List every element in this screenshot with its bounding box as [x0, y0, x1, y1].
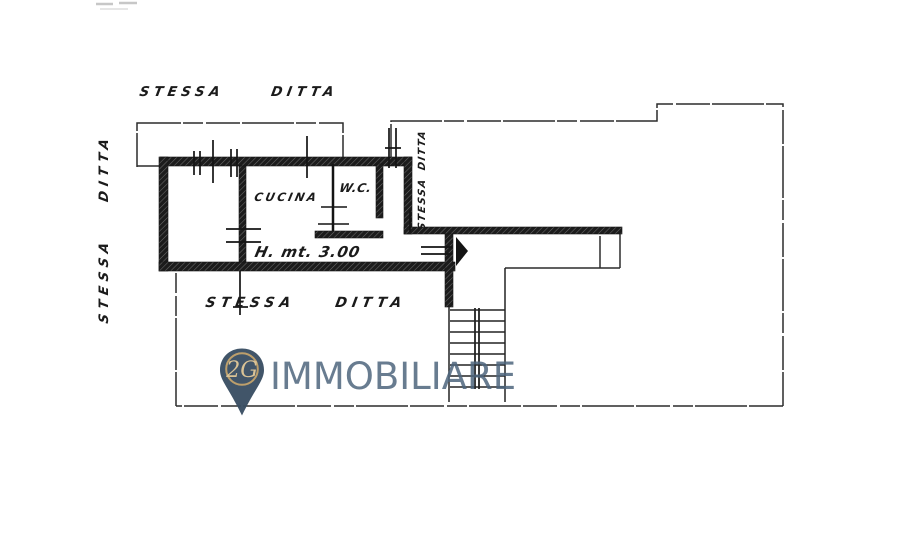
window-ticks: [194, 128, 410, 315]
walls: [159, 157, 622, 307]
label-word: STESSA: [97, 237, 112, 325]
floor-plan-page: STESSADITTA STESSADITTA STESSADITTA STES…: [0, 0, 920, 537]
logo-monogram: 2G: [225, 358, 258, 383]
label-stessa-ditta-right: STESSADITTA: [417, 119, 433, 232]
scan-artifact: [96, 3, 137, 9]
watermark-brand-text: IMMOBILIARE: [270, 355, 516, 398]
map-pin-icon: 2G: [218, 347, 266, 417]
label-word: STESSA: [138, 84, 225, 100]
label-word: DITTA: [334, 295, 408, 311]
label-word: STESSA: [204, 295, 297, 311]
label-room-cucina: CUCINA: [253, 190, 320, 204]
label-stessa-ditta-bottom: STESSADITTA: [204, 295, 408, 311]
label-ceiling-height: H. mt. 3.00: [253, 243, 362, 261]
label-stessa-ditta-left: STESSADITTA: [97, 116, 117, 326]
label-word: DITTA: [270, 84, 340, 100]
door-symbol: [421, 237, 468, 266]
label-word: STESSA: [417, 177, 428, 231]
wc-partition: [318, 164, 349, 231]
corridor-outline: [505, 234, 620, 268]
label-word: DITTA: [417, 129, 428, 171]
label-room-wc: W.C.: [338, 181, 373, 195]
label-word: DITTA: [97, 133, 112, 203]
label-stessa-ditta-top: STESSADITTA: [138, 84, 339, 100]
floor-plan-drawing: [0, 0, 920, 537]
